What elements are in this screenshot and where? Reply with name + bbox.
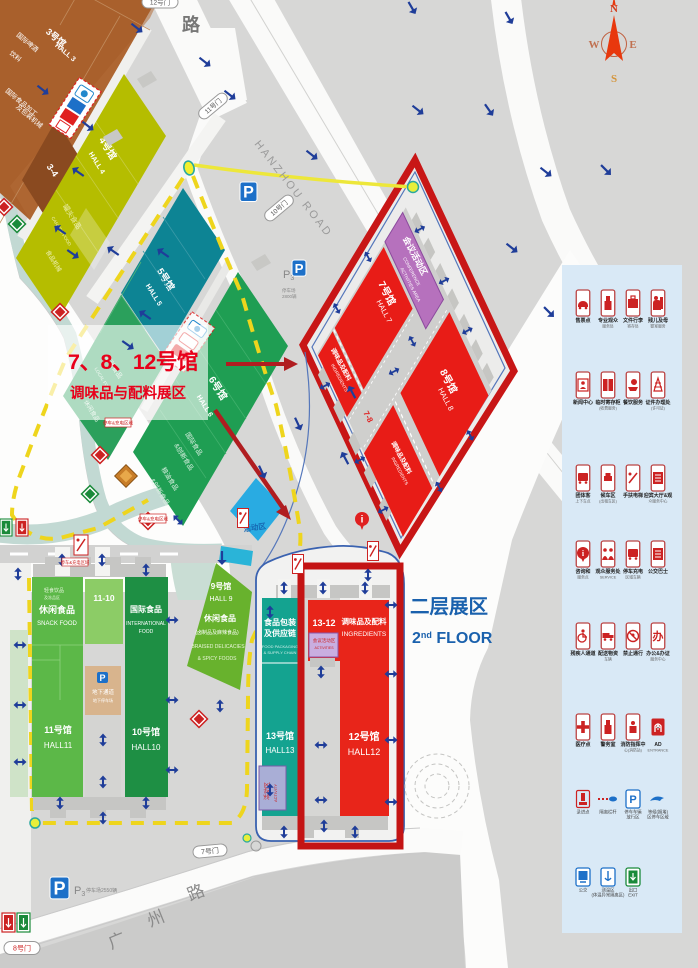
svg-text:迎宾大厅&观: 迎宾大厅&观 (644, 492, 673, 499)
svg-text:休闲食品: 休闲食品 (203, 613, 236, 623)
svg-text:公交: 公交 (579, 887, 588, 894)
svg-text:10号馆: 10号馆 (132, 726, 160, 737)
svg-text:办: 办 (653, 629, 664, 643)
svg-text:服务处: 服务处 (602, 324, 614, 329)
svg-text:专业观众: 专业观众 (598, 317, 618, 324)
svg-text:(收费服务): (收费服务) (599, 406, 617, 411)
svg-text:放行区: 放行区 (627, 814, 641, 821)
svg-text:P: P (629, 794, 636, 806)
svg-text:停车&充电区域: 停车&充电区域 (103, 420, 134, 427)
svg-text:P: P (53, 878, 65, 898)
svg-text:新闻中心: 新闻中心 (573, 399, 593, 406)
svg-text:路: 路 (182, 14, 201, 35)
svg-text:13-12: 13-12 (312, 618, 335, 628)
svg-text:医疗点: 医疗点 (575, 741, 590, 748)
svg-text:录进点: 录进点 (577, 809, 591, 816)
svg-text:调味品及配料: 调味品及配料 (342, 616, 387, 626)
svg-text:(卤制品及麻辣食品): (卤制品及麻辣食品) (195, 629, 239, 636)
svg-text:停车场: 停车场 (282, 287, 296, 294)
svg-text:P: P (243, 184, 254, 202)
svg-text:停车&充电区域: 停车&充电区域 (138, 516, 169, 523)
svg-text:警务室: 警务室 (599, 741, 615, 748)
svg-text:FOOD: FOOD (139, 629, 154, 635)
svg-text:地下通道: 地下通道 (92, 688, 115, 696)
svg-text:HALL 9: HALL 9 (209, 596, 232, 603)
svg-text:地下停车场: 地下停车场 (93, 697, 113, 703)
svg-text:服务点: 服务点 (577, 575, 589, 580)
svg-text:禁止通行: 禁止通行 (622, 650, 643, 657)
svg-text:公交巴士: 公交巴士 (648, 568, 668, 575)
svg-text:咨询和: 咨询和 (575, 568, 590, 575)
svg-text:会议活动区: 会议活动区 (313, 637, 336, 644)
svg-text:团体客: 团体客 (575, 492, 591, 499)
svg-text:ACTIVITY: ACTIVITY (273, 784, 278, 802)
svg-text:手扶电梯: 手扶电梯 (623, 492, 643, 499)
svg-text:FOOD PACKAGING: FOOD PACKAGING (262, 644, 298, 649)
svg-text:7、8、12号馆: 7、8、12号馆 (68, 349, 198, 374)
svg-text:W: W (589, 39, 600, 51)
svg-text:11号馆: 11号馆 (44, 724, 72, 735)
svg-text:及冻品区: 及冻品区 (44, 594, 60, 600)
svg-text:消防指挥中: 消防指挥中 (620, 741, 645, 748)
svg-text:观众服务处: 观众服务处 (595, 568, 621, 575)
svg-text:服务中心: 服务中心 (650, 657, 665, 662)
svg-text:休闲食品: 休闲食品 (38, 604, 75, 615)
svg-text:食品包装: 食品包装 (264, 617, 296, 627)
svg-text:BRAISED DELICACIES: BRAISED DELICACIES (191, 644, 245, 650)
svg-text:P: P (99, 673, 105, 683)
svg-text:HALL13: HALL13 (266, 746, 295, 755)
svg-text:停车场2550辆: 停车场2550辆 (86, 887, 117, 894)
svg-text:证件办理处: 证件办理处 (645, 399, 671, 406)
svg-text:停车充电: 停车充电 (623, 568, 643, 575)
svg-text:残疾人通道: 残疾人通道 (570, 650, 595, 657)
svg-text:(体温异常隔离区): (体温异常隔离区) (592, 892, 626, 899)
svg-text:8号门: 8号门 (13, 944, 31, 953)
svg-text:AD: AD (654, 742, 662, 748)
svg-text:HALL12: HALL12 (348, 747, 381, 757)
svg-text:HALL10: HALL10 (132, 743, 161, 752)
svg-text:上下车点: 上下车点 (575, 499, 590, 504)
svg-text:E: E (629, 39, 636, 51)
svg-text:i: i (361, 515, 364, 526)
svg-text:EXIT: EXIT (628, 893, 638, 898)
svg-text:ACTIVITIES: ACTIVITIES (314, 646, 334, 650)
svg-text:INGREDIENTS: INGREDIENTS (342, 631, 387, 638)
svg-text:众服务中心: 众服务中心 (649, 499, 668, 504)
svg-text:N: N (610, 3, 618, 15)
svg-text:11-10: 11-10 (93, 593, 115, 603)
svg-text:ENTRANCE: ENTRANCE (648, 749, 669, 753)
svg-text:调味品与配料展区: 调味品与配料展区 (70, 384, 186, 402)
svg-text:(许可证): (许可证) (651, 406, 666, 411)
svg-text:残儿及母: 残儿及母 (648, 317, 668, 324)
svg-text:车辆: 车辆 (604, 657, 612, 662)
svg-text:办公&办证: 办公&办证 (646, 650, 670, 657)
svg-text:SERVICE: SERVICE (600, 576, 617, 580)
svg-text:婴室服务: 婴室服务 (650, 324, 665, 329)
svg-text:候车区: 候车区 (600, 492, 615, 499)
svg-text:文件行李: 文件行李 (623, 317, 644, 324)
svg-text:区域车辆: 区域车辆 (625, 575, 640, 580)
svg-text:SNACK FOOD: SNACK FOOD (37, 621, 77, 627)
svg-text:轻食饮品: 轻食饮品 (44, 587, 64, 594)
svg-text:及供应链: 及供应链 (264, 628, 297, 638)
svg-text:心(消防站): 心(消防站) (624, 748, 642, 753)
svg-text:国际食品: 国际食品 (130, 604, 162, 614)
svg-text:& SUPPLY CHAIN: & SUPPLY CHAIN (264, 650, 297, 655)
svg-text:餐饮服务: 餐饮服务 (622, 399, 644, 406)
svg-text:13号馆: 13号馆 (266, 730, 294, 741)
svg-text:临时寄存柜: 临时寄存柜 (595, 399, 620, 406)
svg-text:二层展区: 二层展区 (410, 596, 488, 618)
svg-text:配送物资: 配送物资 (598, 650, 618, 657)
svg-text:P: P (295, 261, 304, 276)
svg-text:12号门: 12号门 (150, 0, 170, 6)
svg-text:12号馆: 12号馆 (348, 730, 379, 743)
svg-text:& SPICY FOODS: & SPICY FOODS (198, 656, 237, 662)
svg-text:寄存处: 寄存处 (627, 324, 639, 329)
svg-text:2800辆: 2800辆 (282, 293, 297, 300)
svg-text:INTERNATIONAL: INTERNATIONAL (126, 621, 166, 627)
svg-text:(出租车区): (出租车区) (599, 499, 617, 504)
svg-text:停车&充电区域: 停车&充电区域 (61, 559, 90, 566)
svg-text:售票点: 售票点 (575, 317, 590, 324)
svg-text:区停车区域: 区停车区域 (647, 814, 669, 821)
svg-text:HALL11: HALL11 (44, 741, 73, 750)
svg-text:隔离栏杆: 隔离栏杆 (599, 809, 617, 816)
svg-text:S: S (611, 73, 617, 85)
svg-text:9号馆: 9号馆 (211, 581, 231, 591)
